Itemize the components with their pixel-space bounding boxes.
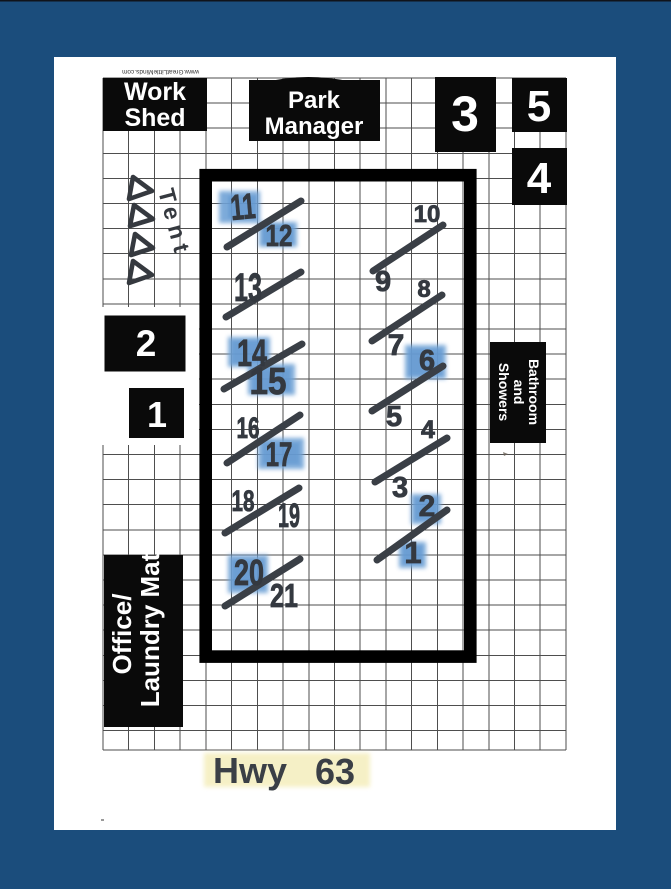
- svg-text:4: 4: [421, 416, 435, 444]
- svg-text:Park: Park: [288, 87, 341, 114]
- svg-text:12: 12: [266, 218, 293, 253]
- svg-text:5: 5: [527, 82, 551, 131]
- svg-text:21: 21: [270, 578, 298, 615]
- svg-text:Hwy: Hwy: [213, 750, 287, 791]
- svg-text:Manager: Manager: [265, 113, 364, 140]
- svg-text:and: and: [511, 380, 527, 405]
- svg-text:15: 15: [250, 360, 287, 403]
- svg-text:9: 9: [375, 266, 391, 298]
- svg-text:1: 1: [404, 535, 421, 570]
- svg-text:Laundry Mat: Laundry Mat: [135, 552, 165, 707]
- svg-text:10: 10: [414, 201, 441, 228]
- svg-text:Shed: Shed: [124, 104, 185, 132]
- svg-text:www.GreatLittleMinds.com: www.GreatLittleMinds.com: [122, 68, 200, 75]
- svg-text:11: 11: [229, 187, 257, 228]
- svg-text:Showers: Showers: [496, 363, 512, 422]
- svg-text:Bathroom: Bathroom: [526, 359, 542, 425]
- svg-text:3: 3: [451, 86, 479, 142]
- svg-text:5: 5: [386, 401, 402, 433]
- svg-text:6: 6: [419, 345, 435, 377]
- svg-text:16: 16: [236, 412, 259, 445]
- svg-text:1: 1: [147, 394, 167, 435]
- svg-text:3: 3: [392, 472, 408, 504]
- svg-text:7: 7: [388, 329, 405, 362]
- svg-text:4: 4: [527, 154, 552, 203]
- svg-text:63: 63: [315, 751, 355, 792]
- svg-text:18: 18: [231, 485, 254, 518]
- svg-text:17: 17: [266, 436, 293, 474]
- svg-text:Work: Work: [124, 78, 186, 106]
- svg-text:2: 2: [419, 490, 436, 523]
- svg-text:8: 8: [417, 276, 430, 303]
- svg-text:20: 20: [234, 552, 264, 593]
- svg-text:13: 13: [234, 266, 262, 310]
- svg-text:Office/: Office/: [107, 594, 137, 675]
- svg-text:2: 2: [136, 323, 157, 364]
- svg-text:19: 19: [278, 496, 300, 534]
